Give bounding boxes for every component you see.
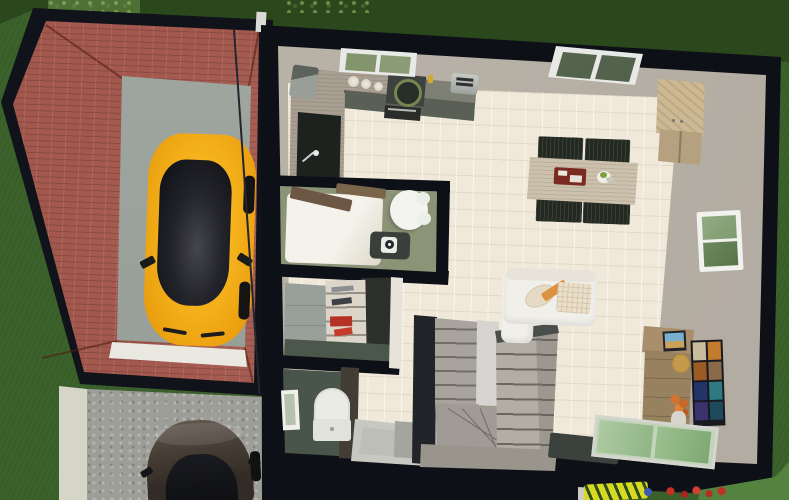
hedge-icon bbox=[286, 0, 378, 13]
shelf-tile bbox=[693, 362, 707, 380]
window-pane bbox=[703, 241, 738, 267]
shelf-tile bbox=[708, 362, 722, 380]
toilet-tank bbox=[416, 192, 430, 205]
shelf-tile bbox=[710, 401, 724, 419]
window-pane bbox=[702, 215, 737, 240]
toaster-slot bbox=[456, 82, 473, 86]
cooktop-burner bbox=[394, 79, 422, 107]
shelf-item-red bbox=[330, 316, 352, 326]
flower-bed bbox=[660, 484, 730, 500]
bottle-icon bbox=[428, 75, 433, 83]
napkin bbox=[606, 177, 615, 182]
shelf-unit bbox=[325, 277, 396, 352]
picture-frame bbox=[662, 330, 686, 351]
serving-tray bbox=[554, 167, 587, 186]
blue-item bbox=[644, 488, 652, 496]
yellow-car bbox=[142, 132, 257, 348]
glass-pane bbox=[654, 426, 711, 463]
lounger bbox=[584, 481, 649, 500]
toilet-tank bbox=[417, 212, 431, 225]
tray-dish bbox=[570, 175, 582, 183]
clock-icon bbox=[672, 354, 690, 373]
toilet-button bbox=[330, 427, 334, 431]
shelf-tile bbox=[693, 342, 707, 360]
shelf-tile bbox=[694, 382, 708, 400]
shelf-tile bbox=[695, 402, 709, 420]
dark-car bbox=[138, 407, 265, 500]
side-window bbox=[696, 210, 743, 272]
car-wheel bbox=[238, 281, 250, 319]
blanket bbox=[556, 282, 592, 314]
washing-machine bbox=[370, 231, 411, 259]
wardrobe-handle bbox=[672, 119, 675, 122]
shelf-tile bbox=[708, 342, 722, 360]
jar bbox=[374, 82, 383, 91]
toaster bbox=[450, 73, 479, 95]
washer-door-dot bbox=[388, 243, 391, 246]
jar bbox=[348, 76, 359, 87]
wc-window-pane bbox=[284, 394, 296, 425]
dining-chair bbox=[538, 136, 584, 161]
media-shelf bbox=[691, 339, 726, 426]
toaster-slot bbox=[456, 77, 473, 81]
dining-chair bbox=[585, 138, 631, 163]
aerial-3d-view[interactable] bbox=[0, 0, 789, 500]
jar bbox=[361, 79, 371, 89]
wardrobe-handle bbox=[680, 120, 683, 123]
picture-image bbox=[665, 333, 685, 349]
shelf-tile bbox=[709, 382, 723, 400]
car-wheel bbox=[250, 451, 262, 481]
toilet bbox=[390, 190, 428, 230]
car-roof-glass bbox=[156, 159, 233, 307]
glass-pane bbox=[597, 420, 654, 457]
wc-window bbox=[281, 390, 300, 431]
coffee-maker bbox=[289, 64, 319, 99]
tray-dish bbox=[558, 170, 567, 175]
